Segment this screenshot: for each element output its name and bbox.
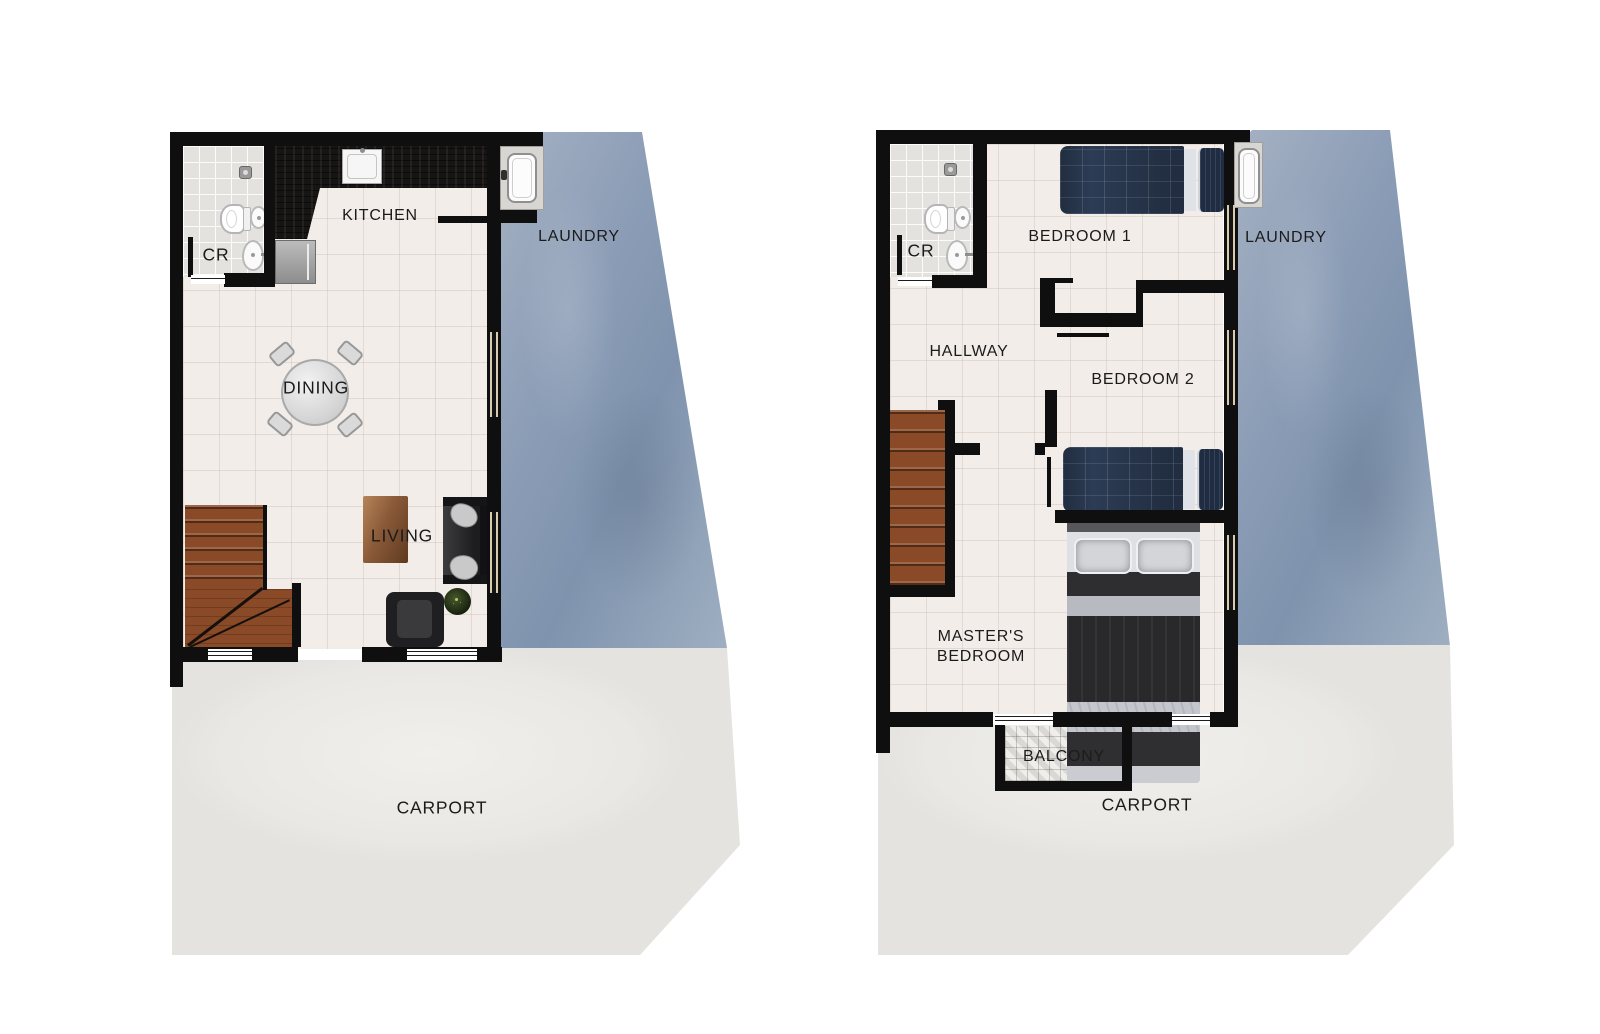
room-label-laundry: LAUNDRY [538,229,620,245]
bedroom2-door-line [1047,457,1051,507]
stair-side-wall [945,400,955,597]
bed-pillow-icon [1074,538,1132,574]
cr-wall-bottom [932,275,987,288]
room-label-kitchen: KITCHEN [342,208,418,224]
washer-knob-icon [501,170,507,180]
room-label-bedroom1: BEDROOM 1 [1028,229,1131,245]
room-label-carport: CARPORT [1102,796,1193,814]
window [490,512,498,593]
bedroom2-door-jamb [1045,390,1057,447]
window-sill [407,649,477,660]
exterior-wall-bottom [1210,712,1238,727]
double-bed-icon [1067,518,1200,783]
room-label-dining: DINING [283,379,349,397]
shower-head-icon [944,163,957,176]
cr-door-jamb [188,237,193,277]
window [1227,330,1235,405]
cr-door-sill [191,275,225,284]
room-label-cr: CR [203,246,230,264]
exterior-wall-bottom [878,712,993,727]
room-label-masters-bedroom: MASTER'S BEDROOM [937,627,1025,667]
armchair-icon [386,592,444,647]
master-bedroom-wall-top [1055,510,1224,523]
balcony-door-sill [995,714,1053,725]
exterior-wall-top [876,130,1250,144]
bedroom1-wall-bottom [1143,280,1224,293]
refrigerator-icon [275,240,316,284]
staircase [185,505,263,590]
room-label-bedroom2: BEDROOM 2 [1091,372,1194,388]
floorplan-canvas: KITCHEN LAUNDRY CR DINING LIVING CARPORT [0,0,1600,1034]
room-label-laundry: LAUNDRY [1245,230,1327,246]
laundry-zone [1238,130,1453,648]
hallway-wall-stub [955,443,980,455]
window [490,332,498,417]
cr-door-jamb [897,235,902,275]
cr-door-sill [898,277,932,286]
shower-head-icon [239,166,252,179]
kitchen-sink-icon [342,149,382,184]
window [1227,535,1235,610]
window-sill [1172,714,1210,725]
entry-wall-stub [292,583,301,647]
washing-machine-icon [507,153,537,203]
room-label-cr: CR [908,242,935,260]
balcony-wall-bottom [995,781,1132,791]
plant-icon [444,588,471,615]
cr-wall-bottom [224,273,275,287]
bedroom2-door-foot [1035,443,1045,455]
laundry-nook-wall [501,210,537,223]
single-bed-icon [1060,146,1223,214]
window [1227,205,1235,270]
staircase [890,410,945,585]
exterior-wall-bottom [1053,712,1172,727]
window-sill [208,649,252,660]
washing-machine-icon [1238,148,1260,204]
stair-side-wall [263,505,267,590]
round-basin-icon [954,206,971,229]
closet-line [1057,333,1109,337]
single-bed-icon [1063,447,1223,512]
bed-pillow-icon [1136,538,1194,574]
room-label-balcony: BALCONY [1023,749,1105,765]
stair-cap-wall [938,400,955,410]
room-label-carport: CARPORT [397,799,488,817]
cr-wall-right [973,144,987,277]
room-label-hallway: HALLWAY [929,344,1008,360]
exterior-wall-left [876,130,890,753]
room-label-living: LIVING [371,527,433,545]
bedroom1-partition [1040,313,1143,327]
cr-wall-right [264,146,275,274]
bedroom1-partition-step [1136,280,1143,327]
exterior-wall-left [170,132,183,687]
kitchen-half-wall [438,216,488,223]
stair-bottom-wall [887,585,955,597]
